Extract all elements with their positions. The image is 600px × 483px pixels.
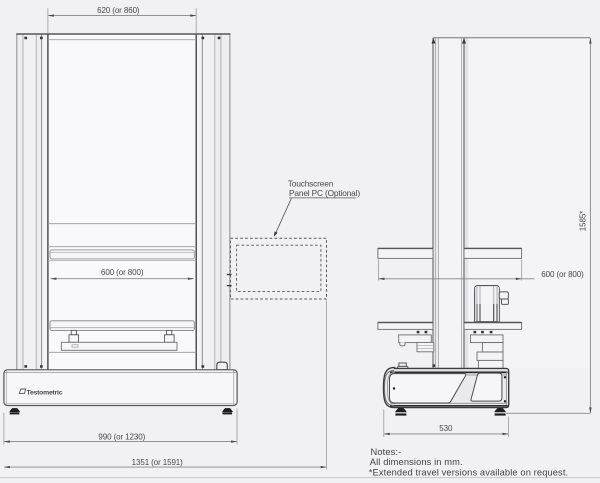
svg-text:990 (or 1230): 990 (or 1230) — [98, 433, 145, 442]
svg-text:Panel PC (Optional): Panel PC (Optional) — [289, 188, 360, 198]
svg-text:All dimensions in mm.: All dimensions in mm. — [370, 457, 463, 467]
svg-text:Notes:-: Notes:- — [371, 447, 402, 457]
svg-text:600 (or 800): 600 (or 800) — [541, 270, 584, 279]
svg-text:1351 (or 1591): 1351 (or 1591) — [132, 458, 184, 467]
svg-text:620 (or 860): 620 (or 860) — [97, 6, 140, 15]
svg-text:Testometric: Testometric — [27, 390, 63, 397]
svg-text:600 (or 800): 600 (or 800) — [101, 268, 144, 277]
svg-text:*Extended travel versions avai: *Extended travel versions available on r… — [369, 467, 568, 477]
svg-text:530: 530 — [439, 424, 453, 433]
svg-text:1585*: 1585* — [579, 211, 588, 231]
